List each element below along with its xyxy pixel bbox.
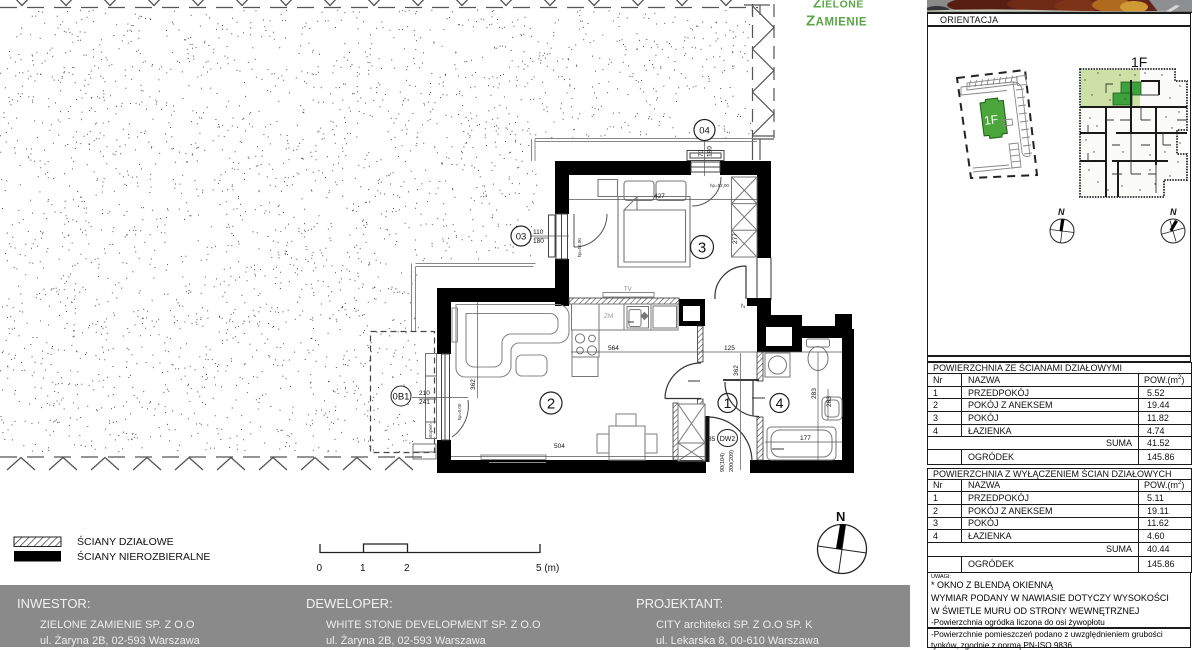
svg-text:N: N xyxy=(1170,207,1177,217)
svg-text:2: 2 xyxy=(547,396,555,413)
svg-text:110: 110 xyxy=(533,229,544,236)
svg-text:427: 427 xyxy=(654,193,665,200)
svg-text:ZIELONE: ZIELONE xyxy=(813,0,864,11)
svg-text:90(104): 90(104) xyxy=(720,453,726,472)
svg-text:DW2: DW2 xyxy=(720,436,736,443)
svg-text:2*: 2* xyxy=(741,303,747,308)
svg-text:85: 85 xyxy=(708,436,716,443)
svg-text:03: 03 xyxy=(516,232,527,243)
svg-text:3: 3 xyxy=(698,240,706,257)
svg-text:ŚCIANY NIEROZBIERALNE: ŚCIANY NIEROZBIERALNE xyxy=(77,550,210,563)
svg-text:504: 504 xyxy=(554,443,565,450)
svg-text:283: 283 xyxy=(811,388,818,399)
svg-text:1: 1 xyxy=(724,395,732,411)
svg-text:70: 70 xyxy=(698,149,705,157)
svg-text:180: 180 xyxy=(533,238,544,245)
svg-text:N: N xyxy=(836,509,845,524)
svg-text:1F: 1F xyxy=(1131,54,1147,70)
svg-text:277: 277 xyxy=(732,233,739,244)
svg-text:hp=0,00: hp=0,00 xyxy=(457,403,462,420)
svg-text:hp=52,00: hp=52,00 xyxy=(577,238,582,257)
svg-text:0B1: 0B1 xyxy=(393,392,410,403)
svg-text:180: 180 xyxy=(707,146,714,157)
svg-text:200(209): 200(209) xyxy=(729,450,735,472)
svg-text:210: 210 xyxy=(419,390,430,397)
svg-text:TV: TV xyxy=(624,287,632,293)
svg-text:1: 1 xyxy=(360,563,366,574)
svg-text:ŚCIANY DZIAŁOWE: ŚCIANY DZIAŁOWE xyxy=(77,535,174,548)
svg-text:177: 177 xyxy=(800,435,811,442)
svg-text:stopień: stopień xyxy=(428,423,433,438)
svg-text:4: 4 xyxy=(776,395,784,411)
svg-text:04: 04 xyxy=(699,126,710,137)
svg-text:362: 362 xyxy=(733,365,740,376)
svg-text:5 (m): 5 (m) xyxy=(536,563,559,574)
svg-text:N: N xyxy=(1058,207,1065,217)
svg-text:2: 2 xyxy=(404,563,410,574)
svg-text:ZAMIENIE: ZAMIENIE xyxy=(806,13,867,30)
svg-text:125: 125 xyxy=(724,345,735,352)
svg-text:283: 283 xyxy=(826,396,833,407)
svg-text:362: 362 xyxy=(470,379,477,390)
svg-text:241: 241 xyxy=(419,399,430,406)
svg-text:0: 0 xyxy=(317,563,323,574)
svg-text:ZM: ZM xyxy=(604,313,613,320)
svg-text:1F: 1F xyxy=(983,112,999,128)
svg-text:hp=52,00: hp=52,00 xyxy=(710,183,729,188)
svg-text:564: 564 xyxy=(608,345,619,352)
